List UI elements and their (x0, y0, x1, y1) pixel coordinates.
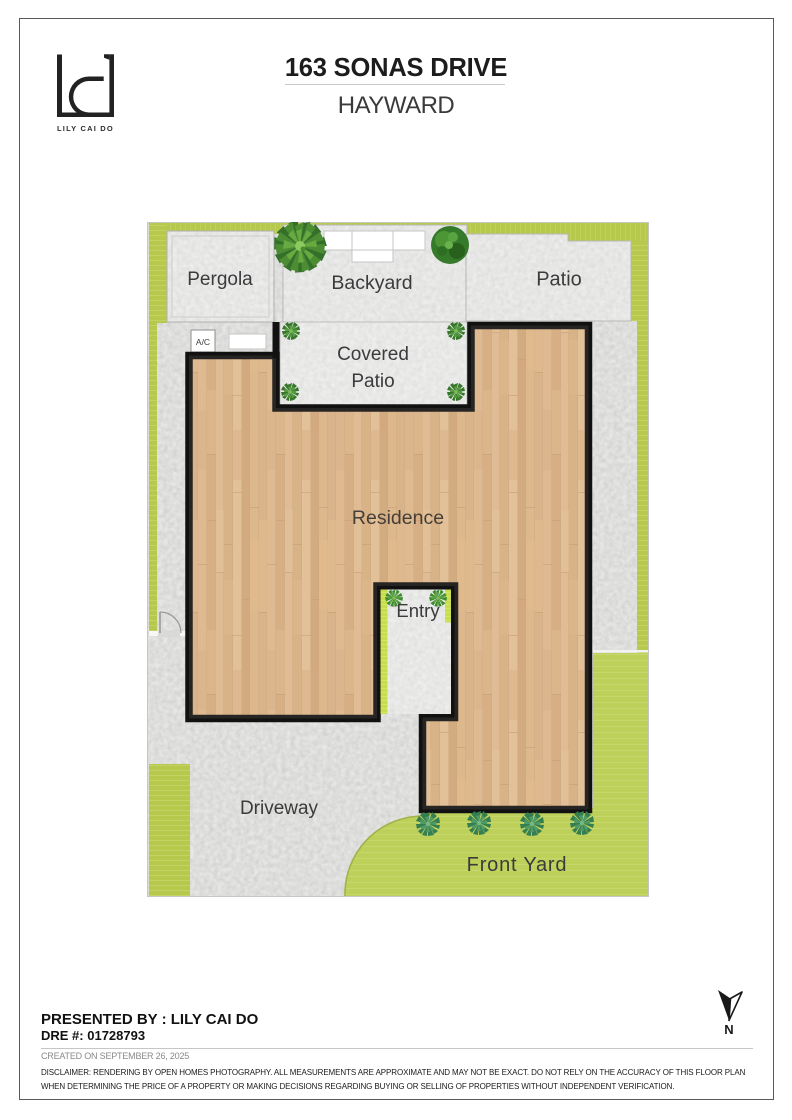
svg-text:Driveway: Driveway (240, 798, 319, 819)
svg-text:Front Yard: Front Yard (467, 854, 568, 876)
svg-text:LILY CAI DO: LILY CAI DO (57, 124, 114, 133)
svg-text:Covered: Covered (337, 344, 409, 365)
svg-text:Residence: Residence (352, 507, 444, 529)
svg-text:N: N (724, 1022, 733, 1037)
svg-text:Pergola: Pergola (187, 269, 253, 290)
svg-text:Patio: Patio (351, 371, 394, 392)
svg-text:A/C: A/C (196, 337, 210, 347)
svg-text:Backyard: Backyard (331, 272, 412, 294)
svg-text:Patio: Patio (536, 269, 582, 291)
svg-text:Entry: Entry (396, 600, 440, 621)
